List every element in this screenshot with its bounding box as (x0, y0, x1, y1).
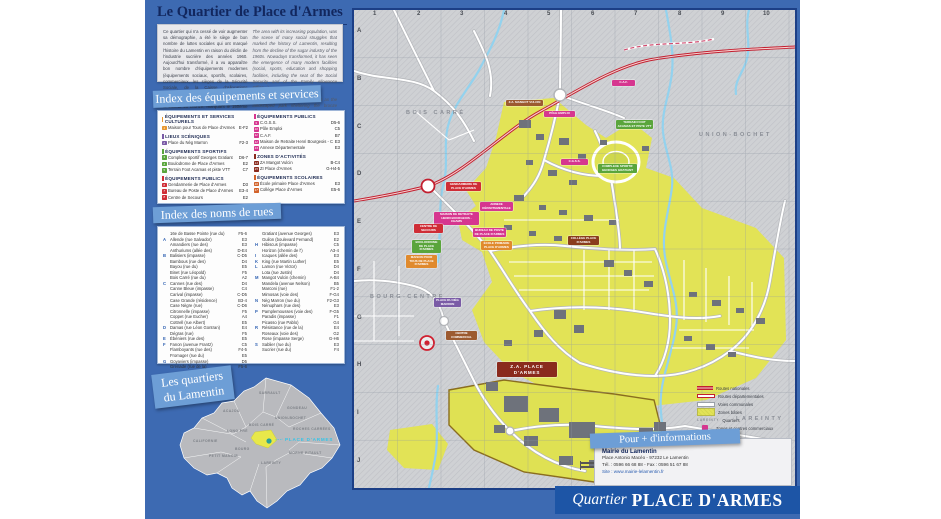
index-item: 5Terrain Foot Acamas et piste VTTC7 (162, 167, 248, 173)
item-number-badge: 9 (254, 121, 259, 126)
poster: Le Quartier de Place d'Armes Ce quartier… (145, 0, 800, 519)
street-group-letter: L (255, 264, 260, 270)
streets-column-2: Gratiant (avenue Georges)E3Guilon (boule… (255, 231, 339, 359)
street-name: Sucrier (rue du) (262, 347, 332, 353)
item-number-badge: 15 (254, 167, 259, 172)
section-title: ÉQUIPEMENTS PUBLICS (257, 114, 316, 119)
item-number-badge: 7 (162, 189, 167, 194)
grid-col-label: 4 (504, 11, 507, 17)
locator-label: LAREINTY (261, 461, 281, 465)
main-map[interactable]: 1 2 3 4 5 6 7 8 9 10 A B C D E F G H I J… (352, 8, 797, 490)
grid-col-label: 5 (547, 11, 550, 17)
section-bar (254, 154, 256, 159)
street-group-letter: B (163, 253, 168, 259)
grid-col-label: 10 (763, 11, 770, 17)
item-number-badge: 4 (162, 162, 167, 167)
index-item: 2Place du Nèg MarronF2-3 (162, 140, 248, 146)
poi-centre-de-secours[interactable]: CENTRE DE SECOURS (414, 224, 443, 233)
poi-complexe-sportif[interactable]: COMPLEXE SPORTIF GEORGES GRATIANT (598, 164, 637, 173)
item-number-badge: 1 (162, 126, 167, 131)
poi-terrain-foot-acamas[interactable]: TERRAIN FOOT ACAMAS ET PISTE VTT (616, 120, 653, 129)
streets-index-panel: 16e de Basse Pointe (rue du)F5-6AAllende… (157, 226, 345, 364)
legend-swatch-route-nationale (697, 386, 713, 390)
section-bar (162, 176, 164, 181)
locator-label: CALIFORNIE (193, 439, 218, 443)
footer-place-darmes-title: PLACE D'ARMES (632, 490, 783, 511)
grid-row-label: B (357, 76, 361, 82)
street-group-letter: M (255, 275, 260, 281)
street-row: Sucrier (rue du)F4 (255, 347, 339, 353)
locator-label: LONG PRÉ (227, 428, 248, 433)
legend-swatch-zones-baties (697, 408, 715, 416)
section-zones-activites: ZONES D'ACTIVITÉS 14ZA Mangot VulcinB-C4… (254, 154, 340, 173)
grid-row-label: F (357, 267, 361, 273)
section-culturels: ÉQUIPEMENTS ET SERVICES CULTURELS 1Maiso… (162, 114, 248, 131)
grid-row-label: E (357, 219, 361, 225)
legend-row: Zones bâties (697, 408, 793, 416)
grid-col-label: 7 (634, 11, 637, 17)
locator-label: SARRAULT (259, 391, 281, 395)
poi-cgss[interactable]: C.G.S.S. (561, 159, 588, 165)
place-darmes-dot (266, 438, 271, 443)
grid-col-label: 1 (373, 11, 376, 17)
index-item: 15ZI Place d'ArmesG-H4-5 (254, 166, 340, 172)
intro-text-english: The area with its increasing population,… (253, 29, 338, 77)
grid-col-label: 3 (460, 11, 463, 17)
item-number-badge: 8 (162, 195, 167, 200)
street-group-letter: D (163, 325, 168, 331)
section-title: ÉQUIPEMENTS SCOLAIRES (257, 175, 323, 180)
equipment-index-left: ÉQUIPEMENTS ET SERVICES CULTURELS 1Maiso… (162, 114, 248, 200)
street-group-letter: C (163, 281, 168, 287)
equipment-index-panel: ÉQUIPEMENTS ET SERVICES CULTURELS 1Maiso… (157, 110, 345, 204)
lamentin-locator-map: PLACE D'ARMES SARRAULT GONDEAU ACAJOU BO… (171, 372, 349, 514)
footer-quartier-word: Quartier (572, 491, 626, 509)
locator-label: BOIS CARRÉ (249, 422, 275, 427)
district-label-union-bochet: UNION-BOCHET (699, 132, 772, 138)
poi-boulodrome[interactable]: BOULODROME DE PLACE D'ARMES (412, 240, 441, 253)
item-number-badge: 12 (254, 140, 259, 145)
section-bar (162, 117, 163, 122)
poi-centre-commercial[interactable]: CENTRE COMMERCIAL (446, 331, 477, 340)
mairie-address: Place Antonio Macéo - 97232 Le Lamentin (602, 455, 785, 462)
street-group-letter: A (163, 237, 168, 243)
district-label-bois-carre: BOIS CARRÉ (406, 110, 466, 116)
section-title: ÉQUIPEMENTS ET SERVICES CULTURELS (165, 114, 248, 124)
locator-label: UNION-BOCHET (275, 416, 307, 420)
page: Le Quartier de Place d'Armes Ce quartier… (0, 0, 941, 519)
poi-caf[interactable]: C.A.F. (612, 80, 635, 86)
section-title: LIEUX SCÉNIQUES (165, 134, 210, 139)
locator-label: GONDEAU (287, 406, 307, 410)
intro-panel: Ce quartier qui n'a cessé de voir augmen… (157, 24, 343, 82)
locator-label: PETIT MANOIR (209, 454, 238, 458)
index-item: 17Collège Place d'ArmesE5-6 (254, 187, 340, 193)
section-publics-2: ÉQUIPEMENTS PUBLICS 9C.G.S.S.D5-610Pôle … (254, 114, 340, 151)
mairie-website[interactable]: Site : www.mairie-lelamentin.fr (602, 469, 785, 476)
section-bar (254, 175, 256, 180)
section-sportifs: ÉQUIPEMENTS SPORTIFS 3Complexe sportif G… (162, 149, 248, 174)
item-number-badge: 10 (254, 127, 259, 132)
intro-text-french: Ce quartier qui n'a cessé de voir augmen… (163, 29, 248, 77)
grid-col-label: 9 (721, 11, 724, 17)
section-bar (162, 149, 164, 154)
section-title: ZONES D'ACTIVITÉS (257, 154, 306, 159)
street-group-letter: N (255, 298, 260, 304)
locator-label: BOURG (235, 447, 250, 451)
locator-highlight-label: PLACE D'ARMES (285, 437, 333, 442)
legend-swatch-route-departementale (697, 394, 715, 399)
poi-bureau-de-poste[interactable]: BUREAU DE POSTE DE PLACE D'ARMES (473, 228, 506, 237)
item-number-badge: 11 (254, 133, 259, 138)
item-number-badge: 2 (162, 141, 167, 146)
poi-za-place-darmes[interactable]: Z.A. PLACE D'ARMES (497, 362, 557, 377)
street-grid-ref: F5-6 (238, 364, 247, 370)
intro-paragraph-en-1: The area with its increasing population,… (253, 29, 338, 90)
legend-row: Routes départementales (697, 392, 793, 400)
legend-row: Voies communales (697, 400, 793, 408)
grid-row-label: G (357, 315, 362, 321)
target-marker (420, 336, 434, 350)
equipment-index-right: ÉQUIPEMENTS PUBLICS 9C.G.S.S.D5-610Pôle … (254, 114, 340, 200)
legend-swatch-quartier: LAREINTY (697, 418, 719, 423)
locator-label: ROCHES CARRÉES (293, 426, 331, 431)
streets-index-banner: Index des noms de rues (153, 203, 281, 223)
poi-gendarmerie[interactable]: GENDARMERIE DE PLACE D'ARMES (446, 182, 481, 191)
grid-col-label: 8 (678, 11, 681, 17)
street-group-letter: R (255, 325, 260, 331)
legend-swatch-voie-communale (697, 402, 715, 407)
item-number-badge: 6 (162, 183, 167, 188)
street-group-letter: F (163, 342, 168, 348)
item-number-badge: 5 (162, 168, 167, 173)
locator-label: MORNE PITAULT (289, 451, 322, 455)
poi-za-mangot-vulcin[interactable]: Z.A. MANGOT VULCIN (506, 100, 543, 106)
item-number-badge: 14 (254, 161, 259, 166)
poi-ecole-primaire[interactable]: ÉCOLE PRIMAIRE PLACE D'ARMES (481, 241, 512, 250)
grid-col-label: 2 (417, 11, 420, 17)
page-title: Le Quartier de Place d'Armes (157, 4, 347, 25)
index-item: 1Maison pour Tous de Place d'ArmesE-F2 (162, 125, 248, 131)
section-sceniques: LIEUX SCÉNIQUES 2Place du Nèg MarronF2-3 (162, 134, 248, 146)
section-bar (254, 114, 256, 119)
poi-maison-de-retraite[interactable]: MAISON DE RETRAITE HENRI BOURGEOIS - CHA… (434, 212, 479, 225)
section-publics-1: ÉQUIPEMENTS PUBLICS 6Gendarmerie de Plac… (162, 176, 248, 201)
street-grid-ref: F4 (334, 347, 339, 353)
street-group-letter: P (255, 309, 260, 315)
section-scolaires: ÉQUIPEMENTS SCOLAIRES 16École primaire P… (254, 175, 340, 194)
poi-pole-emploi[interactable]: PÔLE EMPLOI (544, 111, 575, 117)
locator-label: ACAJOU (223, 409, 240, 413)
poi-annexe-departementale[interactable]: ANNEXE DÉPARTEMENTALE (480, 202, 513, 211)
item-number-badge: 13 (254, 146, 259, 151)
index-item: 13Annexe DépartementaleE3 (254, 145, 340, 151)
item-number-badge: 17 (254, 188, 259, 193)
section-bar (162, 134, 164, 139)
poi-college[interactable]: COLLÈGE PLACE D'ARMES (568, 236, 599, 245)
grid-row-label: J (357, 458, 360, 464)
index-item: 8Centre de SecoursE2 (162, 195, 248, 201)
item-number-badge: 3 (162, 155, 167, 160)
legend-row: LAREINTYQuartiers (697, 416, 793, 424)
street-group-letter: S (255, 342, 260, 348)
legend-row: Routes nationales (697, 384, 793, 392)
grid-row-label: H (357, 362, 361, 368)
stadium (593, 142, 639, 182)
item-number-badge: 16 (254, 182, 259, 187)
grid-row-label: A (357, 28, 361, 34)
street-group-letter: H (255, 242, 260, 248)
map-legend: Routes nationales Routes départementales… (697, 384, 793, 432)
footer-title-banner: Quartier PLACE D'ARMES (555, 486, 800, 514)
mairie-phone: Tél. : 0596 66 68 88 - Fax : 0596 51 67 … (602, 462, 785, 469)
street-group-letter: G (163, 359, 168, 365)
streets-column-1: 16e de Basse Pointe (rue du)F5-6AAllende… (163, 231, 247, 359)
section-title: ÉQUIPEMENTS PUBLICS (165, 176, 224, 181)
grid-row-label: C (357, 124, 361, 130)
poi-place-du-neg-marron[interactable]: PLACE DU NÈG MARRON (434, 298, 461, 307)
section-title: ÉQUIPEMENTS SPORTIFS (165, 149, 227, 154)
grid-row-label: I (357, 410, 359, 416)
poi-maison-pour-tous[interactable]: MAISON POUR TOUS DE PLACE D'ARMES (406, 255, 437, 268)
grid-col-label: 6 (591, 11, 594, 17)
grid-row-label: D (357, 171, 361, 177)
